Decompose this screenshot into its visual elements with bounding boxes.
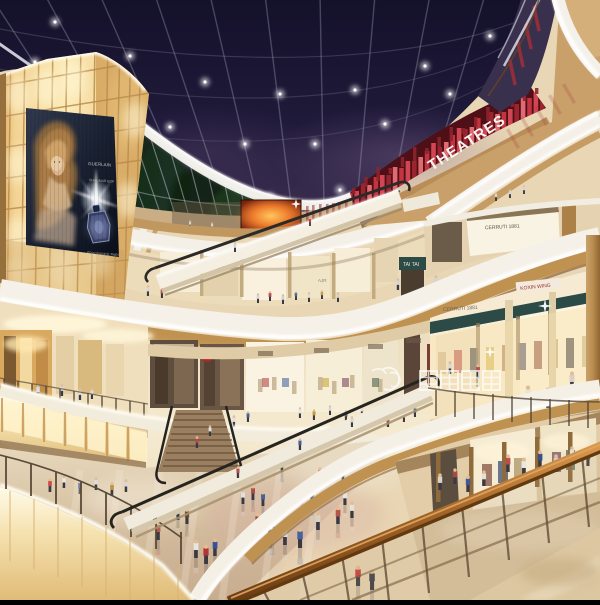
svg-text:TAI TAI: TAI TAI: [403, 262, 419, 268]
svg-text:AJR: AJR: [318, 278, 327, 283]
